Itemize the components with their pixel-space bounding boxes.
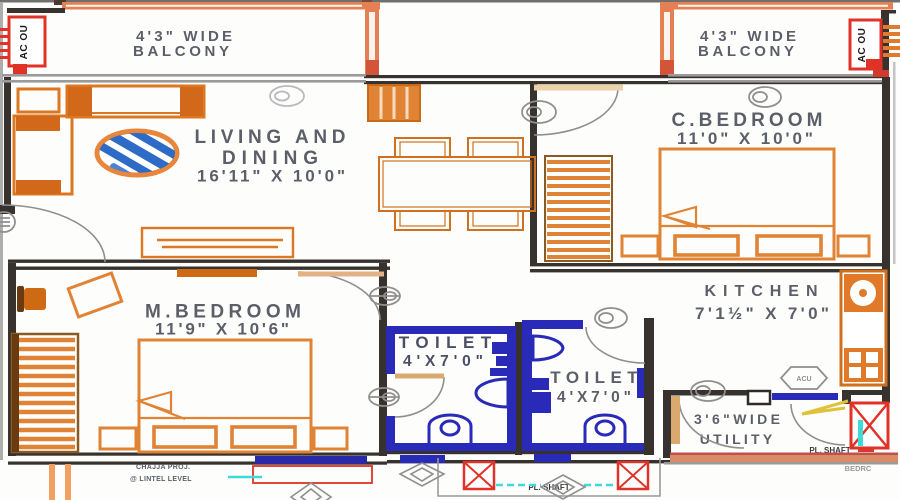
svg-text:BEDRC: BEDRC (845, 464, 872, 473)
svg-text:BALCONY: BALCONY (698, 43, 798, 60)
svg-text:KITCHEN: KITCHEN (704, 283, 824, 300)
svg-text:AC OU: AC OU (857, 28, 868, 63)
svg-text:UTILITY: UTILITY (700, 431, 776, 447)
svg-text:C.BEDROOM: C.BEDROOM (671, 110, 826, 131)
svg-text:CHAJJA PROJ.: CHAJJA PROJ. (136, 464, 190, 471)
svg-text:TOILET: TOILET (399, 333, 498, 352)
svg-text:AC OU: AC OU (19, 25, 30, 60)
svg-text:BALCONY: BALCONY (133, 43, 233, 60)
svg-text:LIVING AND: LIVING AND (195, 127, 351, 148)
svg-text:11'0" X 10'0": 11'0" X 10'0" (677, 129, 816, 148)
svg-text:@ LINTEL LEVEL: @ LINTEL LEVEL (130, 476, 192, 483)
svg-text:4'X7'0": 4'X7'0" (403, 353, 488, 370)
svg-text:16'11" X 10'0": 16'11" X 10'0" (197, 167, 348, 186)
svg-text:ACU: ACU (796, 376, 811, 383)
svg-text:3'6"WIDE: 3'6"WIDE (694, 411, 783, 427)
svg-text:TOILET: TOILET (550, 368, 643, 387)
svg-text:4'X7'0": 4'X7'0" (557, 389, 635, 406)
svg-text:7'1½" X 7'0": 7'1½" X 7'0" (695, 304, 832, 323)
svg-text:11'9" X 10'6": 11'9" X 10'6" (155, 320, 292, 339)
